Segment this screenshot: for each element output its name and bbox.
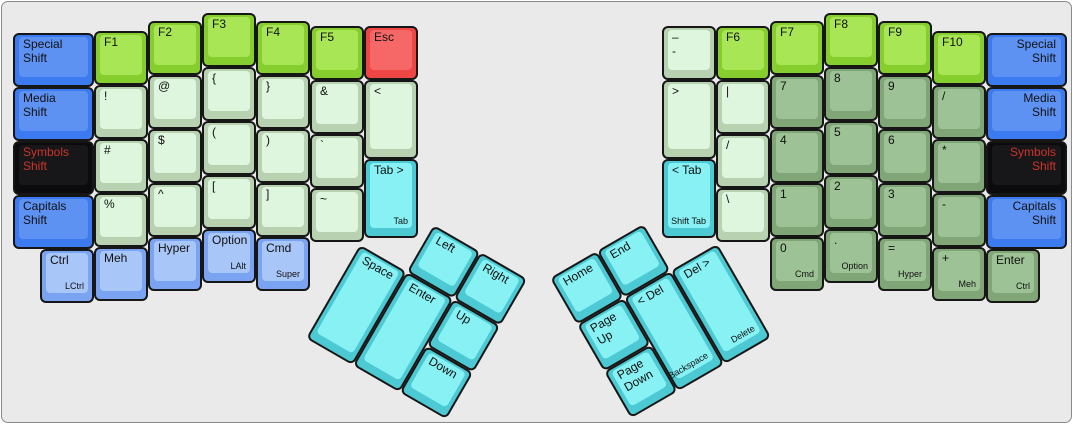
key-capitals-shift-right[interactable]: Capitals Shift (986, 195, 1067, 249)
keycap-top: \ (722, 192, 764, 232)
key-num-5[interactable]: 5 (824, 121, 878, 175)
keycap-top: ( (208, 125, 250, 165)
key-backslash[interactable]: \ (716, 188, 770, 242)
key-label: < (370, 84, 412, 99)
key-label: \ (722, 192, 764, 207)
keycap-top: F9 (884, 25, 926, 65)
keycap-top: 1 (776, 187, 818, 227)
key-label: . (830, 233, 872, 248)
keycap-top: Media Shift (19, 91, 88, 131)
key-num-equals[interactable]: =Hyper (878, 237, 932, 291)
key-num-6[interactable]: 6 (878, 129, 932, 183)
keycap-top: F6 (722, 30, 764, 70)
key-num-minus[interactable]: - (932, 193, 986, 247)
key-num-7[interactable]: 7 (770, 75, 824, 129)
keycap-top: CtrlLCtrl (46, 253, 88, 293)
key-label: Right (476, 258, 520, 292)
key-label: Home (557, 257, 601, 291)
key-media-shift-left[interactable]: Media Shift (13, 87, 94, 141)
keycap-top: 3 (884, 187, 926, 227)
key-hash[interactable]: # (94, 139, 148, 193)
keycap-top: * (938, 143, 980, 183)
keycap-top: CmdSuper (262, 241, 304, 281)
key-num-slash[interactable]: / (932, 85, 986, 139)
key-caret[interactable]: ^ (148, 183, 202, 237)
keycap-top: Symbols Shift (992, 145, 1061, 185)
key-label: Media Shift (992, 91, 1061, 120)
key-symbols-shift-right[interactable]: Symbols Shift (986, 141, 1067, 195)
key-label: = (884, 241, 926, 256)
key-label: * (938, 143, 980, 158)
key-label: Symbols Shift (992, 145, 1061, 174)
key-label: 3 (884, 187, 926, 202)
key-label: F1 (100, 35, 142, 50)
key-open-bracket[interactable]: [ (202, 175, 256, 229)
keycap-top: - (938, 197, 980, 237)
keycap-top: # (100, 143, 142, 183)
key-num-2[interactable]: 2 (824, 175, 878, 229)
key-label: [ (208, 179, 250, 194)
key-label: } (262, 79, 304, 94)
key-label: Ctrl (46, 253, 88, 268)
key-sublabel: LAlt (230, 261, 246, 271)
keycap-top: ) (262, 133, 304, 173)
key-sublabel: Delete (729, 323, 757, 345)
key-open-brace[interactable]: { (202, 67, 256, 121)
key-percent[interactable]: % (94, 193, 148, 247)
key-label: Esc (370, 30, 412, 45)
key-f9[interactable]: F9 (878, 21, 932, 75)
key-label: / (722, 138, 764, 153)
key-label: { (208, 71, 250, 86)
key-meh-left[interactable]: Meh (94, 247, 148, 301)
key-label: F6 (722, 30, 764, 45)
keycap-top: .Option (830, 233, 872, 273)
key-label: Media Shift (19, 91, 88, 120)
keycap-top: Meh (100, 251, 142, 291)
key-label: > (668, 84, 710, 99)
key-label: F7 (776, 25, 818, 40)
key-num-8[interactable]: 8 (824, 67, 878, 121)
key-hyper-left[interactable]: Hyper (148, 237, 202, 291)
keycap-top: } (262, 79, 304, 119)
key-label: ^ (154, 187, 196, 202)
key-label: | (722, 84, 764, 99)
keycap-top: ^ (154, 187, 196, 227)
keycap-top: End (604, 230, 660, 286)
keycap-top: < TabShift Tab (668, 163, 710, 228)
key-label: Space (356, 251, 400, 285)
key-dash[interactable]: – - (662, 26, 716, 80)
key-backtick[interactable]: ` (310, 134, 364, 188)
key-label: 6 (884, 133, 926, 148)
key-at[interactable]: @ (148, 75, 202, 129)
keycap-top: $ (154, 133, 196, 173)
key-label: < Tab (668, 163, 710, 178)
key-label: Special Shift (19, 37, 88, 66)
key-label: 8 (830, 71, 872, 86)
key-label: $ (154, 133, 196, 148)
key-num-plus[interactable]: +Meh (932, 247, 986, 301)
key-label: 4 (776, 133, 818, 148)
key-label: Hyper (154, 241, 196, 256)
keycap-top: 5 (830, 125, 872, 165)
key-num-0[interactable]: 0Cmd (770, 237, 824, 291)
key-f1[interactable]: F1 (94, 31, 148, 85)
key-sublabel: LCtrl (65, 281, 84, 291)
keycap-top: / (938, 89, 980, 129)
key-label: 5 (830, 125, 872, 140)
key-pipe[interactable]: | (716, 80, 770, 134)
key-sublabel: Super (276, 269, 300, 279)
key-label: F8 (830, 17, 872, 32)
key-cmd-left[interactable]: CmdSuper (256, 237, 310, 291)
keycap-top: EnterCtrl (992, 253, 1034, 293)
key-label: Del > (678, 250, 722, 284)
key-tab-back[interactable]: < TabShift Tab (662, 159, 716, 238)
key-close-paren[interactable]: ) (256, 129, 310, 183)
keycap-top: Hyper (154, 241, 196, 281)
key-label: ~ (316, 192, 358, 207)
key-ampersand[interactable]: & (310, 80, 364, 134)
key-num-asterisk[interactable]: * (932, 139, 986, 193)
keycap-top: OptionLAlt (208, 233, 250, 273)
key-open-paren[interactable]: ( (202, 121, 256, 175)
key-sublabel: Cmd (795, 269, 814, 279)
keycap-top: 4 (776, 133, 818, 173)
keycap-top: F2 (154, 25, 196, 65)
key-close-bracket[interactable]: ] (256, 183, 310, 237)
key-dollar[interactable]: $ (148, 129, 202, 183)
key-label: 7 (776, 79, 818, 94)
keycap-top: Symbols Shift (19, 145, 88, 185)
keycap-top: F10 (938, 35, 980, 75)
key-label: / (938, 89, 980, 104)
key-sublabel: Ctrl (1016, 281, 1030, 291)
keycap-top: Capitals Shift (19, 199, 88, 239)
key-label: Option (208, 233, 250, 248)
key-num-period[interactable]: .Option (824, 229, 878, 283)
keycap-top: Special Shift (19, 37, 88, 77)
key-label: F2 (154, 25, 196, 40)
keycap-top: % (100, 197, 142, 237)
keycap-top: – - (668, 30, 710, 70)
key-label: F4 (262, 25, 304, 40)
keycap-top: F5 (316, 30, 358, 70)
key-f5[interactable]: F5 (310, 26, 364, 80)
key-label: Capitals Shift (992, 199, 1061, 228)
key-option-left[interactable]: OptionLAlt (202, 229, 256, 283)
keycap-top: 6 (884, 133, 926, 173)
key-f6[interactable]: F6 (716, 26, 770, 80)
key-label: 0 (776, 241, 818, 256)
key-esc[interactable]: Esc (364, 26, 418, 80)
key-media-shift-right[interactable]: Media Shift (986, 87, 1067, 141)
key-label: ( (208, 125, 250, 140)
key-label: # (100, 143, 142, 158)
key-capitals-shift-left[interactable]: Capitals Shift (13, 195, 94, 249)
key-num-1[interactable]: 1 (770, 183, 824, 237)
keycap-top: F4 (262, 25, 304, 65)
key-label: Enter (992, 253, 1034, 268)
keycap-top: F3 (208, 17, 250, 57)
key-label: Capitals Shift (19, 199, 88, 228)
keyboard-board: Special ShiftMedia ShiftSymbols ShiftCap… (1, 1, 1072, 423)
keycap-top: { (208, 71, 250, 111)
key-tilde[interactable]: ~ (310, 188, 364, 242)
keycap-top: F7 (776, 25, 818, 65)
key-f2[interactable]: F2 (148, 21, 202, 75)
keycap-top: F8 (830, 17, 872, 57)
keycap-top: ` (316, 138, 358, 178)
key-sublabel: Backspace (667, 350, 710, 381)
keycap-top: F1 (100, 35, 142, 75)
key-special-shift-right[interactable]: Special Shift (986, 33, 1067, 87)
key-label: – - (668, 30, 710, 59)
keycap-top: Special Shift (992, 37, 1061, 77)
keycap-top: @ (154, 79, 196, 119)
key-f4[interactable]: F4 (256, 21, 310, 75)
key-ctrl-left[interactable]: CtrlLCtrl (40, 249, 94, 303)
keycap-top: 8 (830, 71, 872, 111)
key-greater-than[interactable]: > (662, 80, 716, 159)
key-label: Left (430, 231, 474, 265)
key-enter-right[interactable]: EnterCtrl (986, 249, 1040, 303)
keycap-top: > (668, 84, 710, 149)
keycap-top: & (316, 84, 358, 124)
key-label: Special Shift (992, 37, 1061, 66)
key-sublabel: Shift Tab (671, 216, 706, 226)
key-num-3[interactable]: 3 (878, 183, 932, 237)
key-label: Symbols Shift (19, 145, 88, 174)
key-label: 2 (830, 179, 872, 194)
key-label: Meh (100, 251, 142, 266)
keycap-top: Esc (370, 30, 412, 70)
keycap-top: Capitals Shift (992, 199, 1061, 239)
keycap-top: 7 (776, 79, 818, 119)
keycap-top: < (370, 84, 412, 149)
keycap-top: ! (100, 89, 142, 129)
keycap-top: ] (262, 187, 304, 227)
keycap-top: / (722, 138, 764, 178)
key-label: Tab > (370, 163, 412, 178)
key-label: F10 (938, 35, 980, 50)
key-close-brace[interactable]: } (256, 75, 310, 129)
key-label: + (938, 251, 980, 266)
keycap-top: 9 (884, 79, 926, 119)
key-slash[interactable]: / (716, 134, 770, 188)
key-sublabel: Tab (393, 216, 408, 226)
key-label: End (604, 230, 648, 264)
keycap-top: Right (464, 258, 520, 314)
key-f7[interactable]: F7 (770, 21, 824, 75)
key-label: ` (316, 138, 358, 153)
key-tab-forward[interactable]: Tab >Tab (364, 159, 418, 238)
keycap-top: | (722, 84, 764, 124)
key-special-shift-left[interactable]: Special Shift (13, 33, 94, 87)
key-f3[interactable]: F3 (202, 13, 256, 67)
keycap-top: =Hyper (884, 241, 926, 281)
key-less-than[interactable]: < (364, 80, 418, 159)
key-f8[interactable]: F8 (824, 13, 878, 67)
key-label: 1 (776, 187, 818, 202)
key-symbols-shift-left[interactable]: Symbols Shift (13, 141, 94, 195)
key-num-4[interactable]: 4 (770, 129, 824, 183)
keycap-top: Tab >Tab (370, 163, 412, 228)
key-label: & (316, 84, 358, 99)
key-label: F9 (884, 25, 926, 40)
keycap-top: ~ (316, 192, 358, 232)
key-label: ! (100, 89, 142, 104)
keycap-top: +Meh (938, 251, 980, 291)
key-label: @ (154, 79, 196, 94)
key-label: F5 (316, 30, 358, 45)
key-label: F3 (208, 17, 250, 32)
keycap-top: Media Shift (992, 91, 1061, 131)
keycap-top: 2 (830, 179, 872, 219)
key-exclamation[interactable]: ! (94, 85, 148, 139)
key-sublabel: Meh (958, 279, 976, 289)
key-f10[interactable]: F10 (932, 31, 986, 85)
key-num-9[interactable]: 9 (878, 75, 932, 129)
key-label: - (938, 197, 980, 212)
key-sublabel: Hyper (898, 269, 922, 279)
key-label: Cmd (262, 241, 304, 256)
key-label: % (100, 197, 142, 212)
key-label: 9 (884, 79, 926, 94)
key-label: ] (262, 187, 304, 202)
keycap-top: [ (208, 179, 250, 219)
key-label: ) (262, 133, 304, 148)
key-sublabel: Option (841, 261, 868, 271)
keycap-top: 0Cmd (776, 241, 818, 281)
